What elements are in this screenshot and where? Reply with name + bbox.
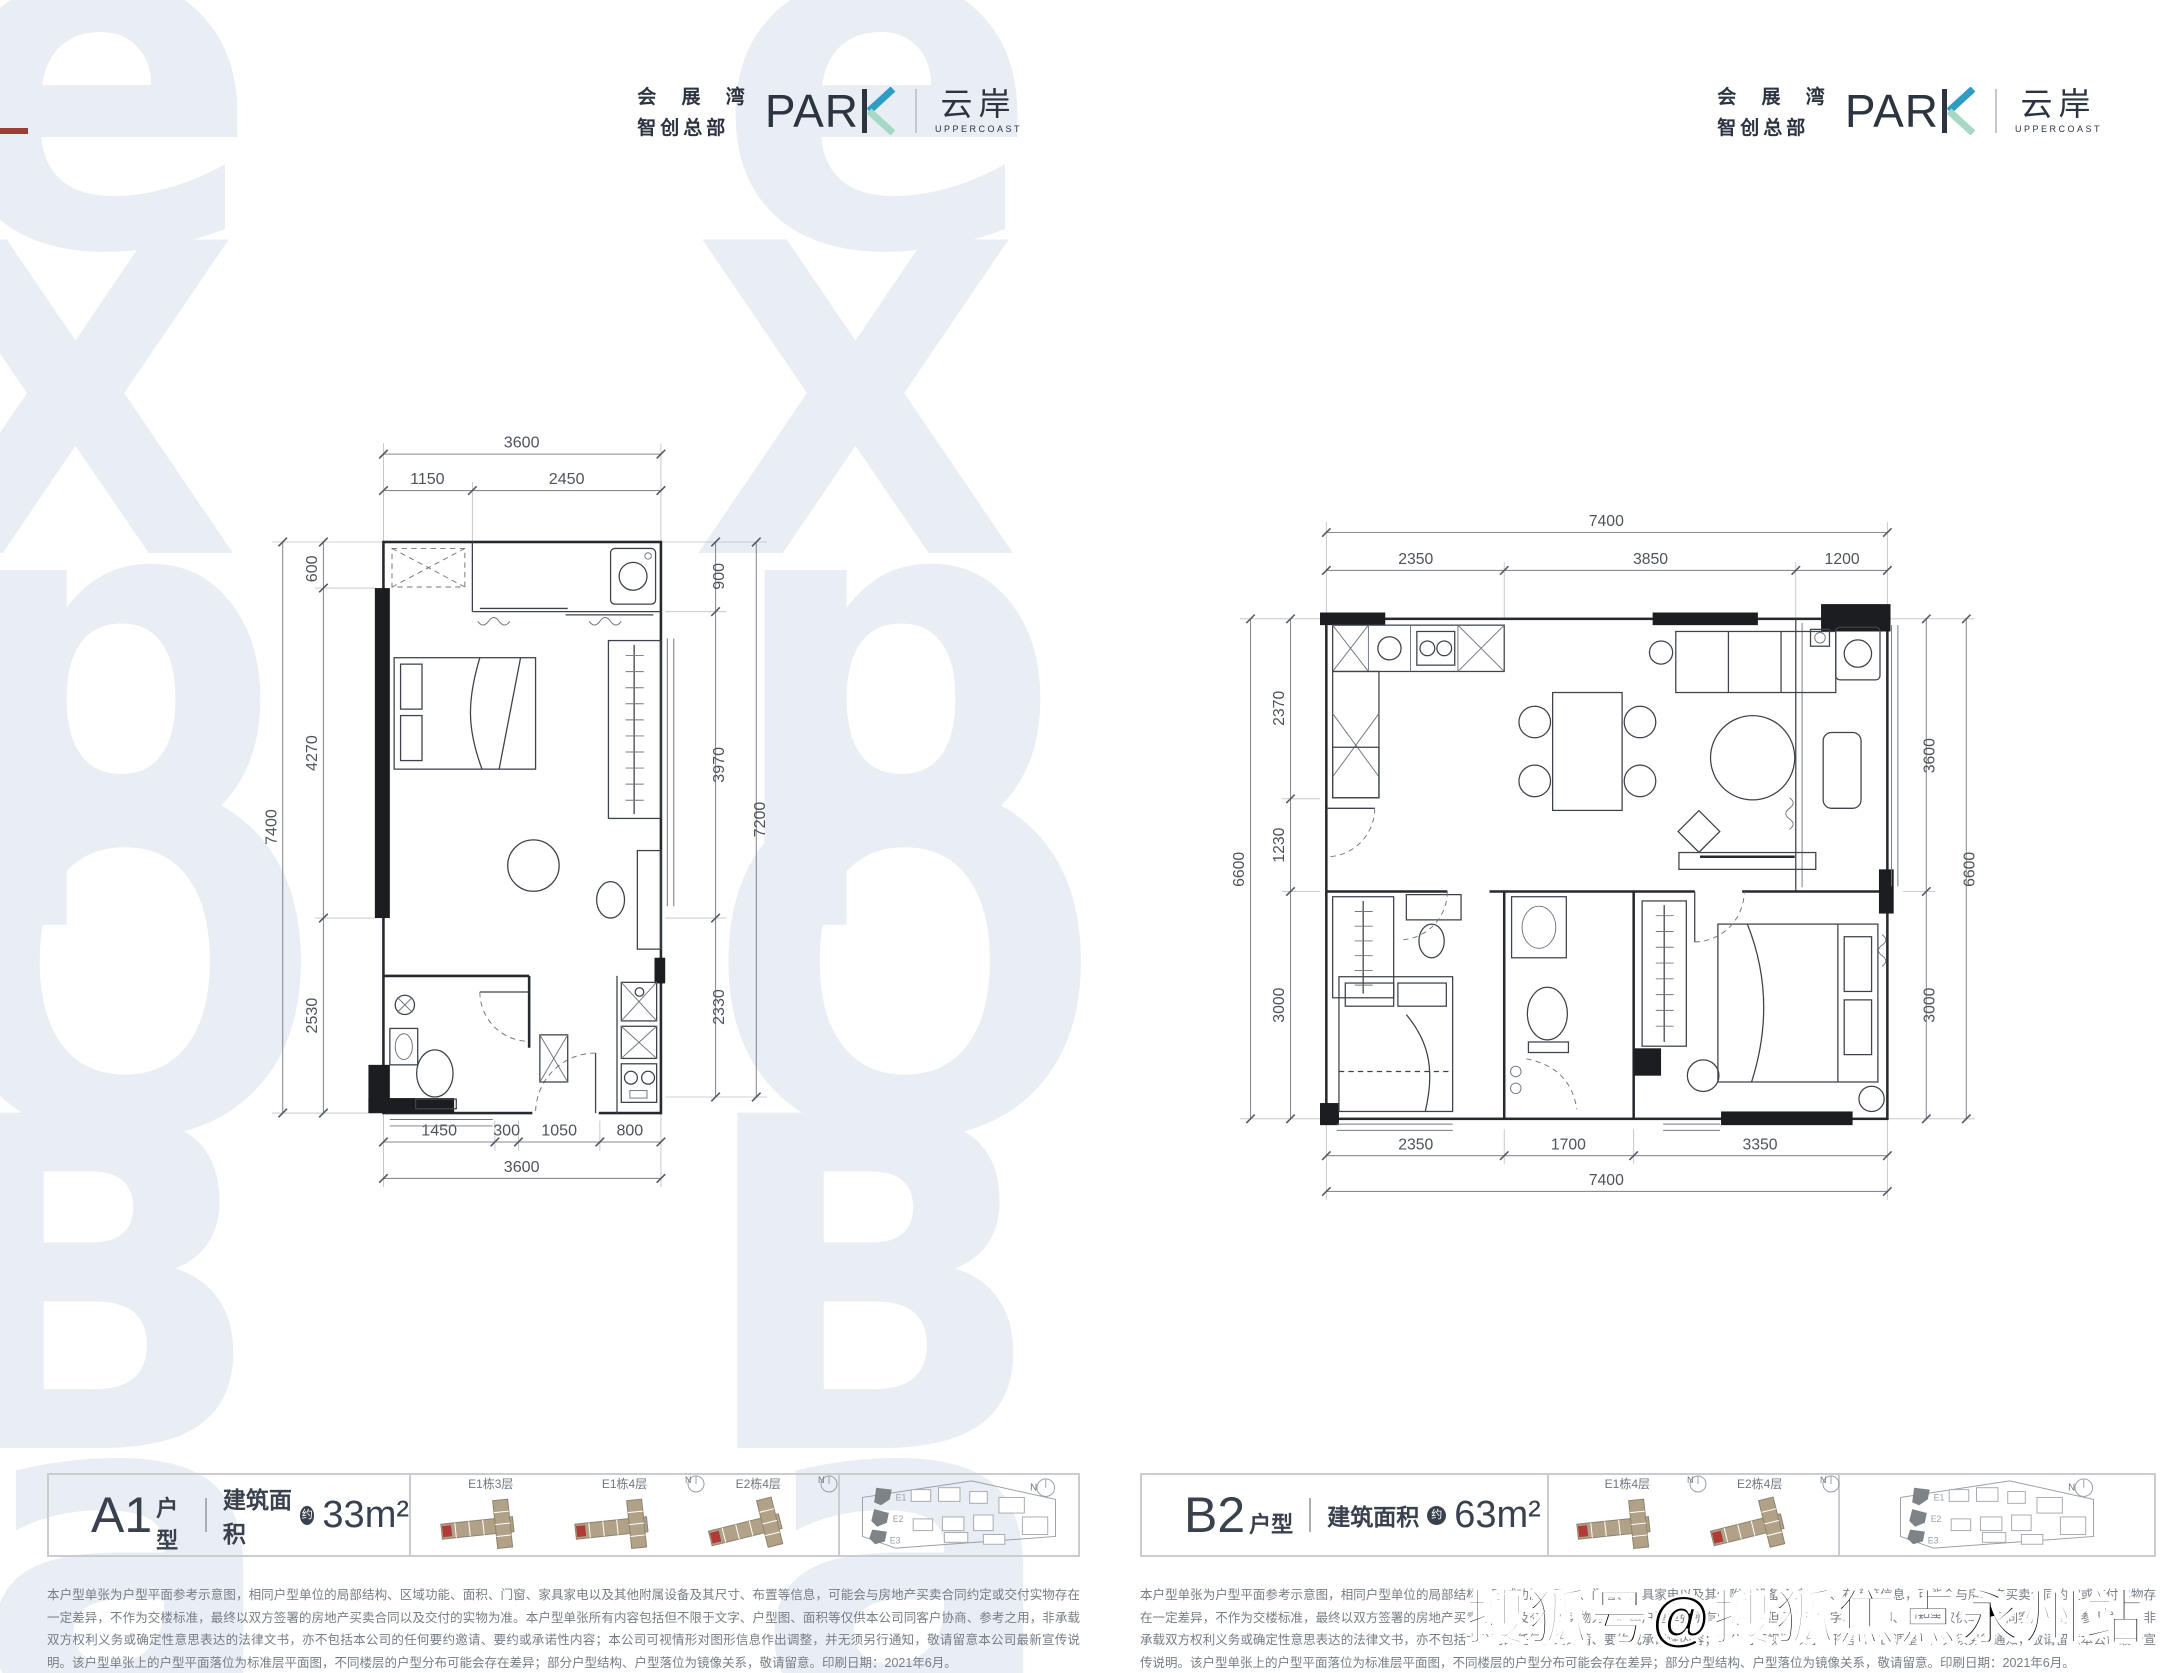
walls bbox=[1320, 604, 1894, 1125]
dim-label: 7400 bbox=[262, 809, 280, 845]
bathroom bbox=[390, 992, 529, 1109]
dim-right: 900 3970 2330 7200 bbox=[710, 538, 769, 1102]
keyplan-label: E1栋3层 bbox=[431, 1475, 551, 1492]
dim-label: 300 bbox=[493, 1122, 520, 1140]
unit-type-label: 户型 bbox=[1249, 1507, 1293, 1539]
curtain-mark bbox=[1878, 935, 1885, 967]
disclaimer-text: 本户型单张为户型平面参考示意图，相同户型单位的局部结构、区域功能、面积、门窗、家… bbox=[47, 1584, 1080, 1673]
dim-label: 6600 bbox=[1231, 852, 1248, 887]
keyplan-cell: E1栋3层 E1栋4层 bbox=[411, 1475, 840, 1555]
brand-logo: 会 展 湾 智创总部 PAR 云岸 UPPERCOAST bbox=[1717, 82, 2102, 140]
keyplan-building-icon bbox=[431, 1493, 551, 1551]
rug bbox=[1711, 716, 1795, 800]
siteplan-cell: E1 E2 E3 N bbox=[840, 1475, 1078, 1555]
dim-label: 2450 bbox=[549, 470, 585, 488]
brand-tagline-line1: 会 展 湾 bbox=[637, 82, 755, 109]
site-building-e2 bbox=[1909, 1509, 1927, 1527]
park-text: PAR bbox=[765, 88, 859, 134]
dim-label: 3600 bbox=[504, 1158, 540, 1176]
dim-label: 2530 bbox=[303, 998, 321, 1034]
page-edge-red-tick bbox=[0, 128, 28, 134]
floorplan-b2: 7400 2350 3850 1200 6600 2370 1230 3000 bbox=[1200, 482, 2000, 1224]
brand-tagline-line2: 智创总部 bbox=[1717, 113, 1835, 140]
entry-door bbox=[1326, 808, 1374, 856]
sub-brand: 云岸 UPPERCOAST bbox=[2015, 88, 2102, 134]
area-label: 建筑面积 bbox=[223, 1481, 292, 1549]
floorplan-a1: 3600 1150 2450 7400 600 4270 2530 bbox=[212, 392, 812, 1254]
logo-divider bbox=[915, 89, 917, 133]
dim-label: 1200 bbox=[1825, 551, 1860, 568]
keyplan-figure: E2栋4层 N bbox=[698, 1475, 818, 1556]
park-wordmark: PAR bbox=[1845, 87, 1977, 135]
dim-label: 3350 bbox=[1742, 1136, 1777, 1153]
dim-label: 2330 bbox=[710, 989, 728, 1025]
north-compass-icon: N bbox=[1030, 1479, 1054, 1497]
north-label: N bbox=[818, 1475, 825, 1485]
keyplan-figure: E1栋4层 N bbox=[1567, 1475, 1687, 1556]
brand-tagline-line1: 会 展 湾 bbox=[1717, 82, 1835, 109]
floorplan-b2-svg: 7400 2350 3850 1200 6600 2370 1230 3000 bbox=[1200, 482, 2000, 1219]
title-divider bbox=[205, 1498, 207, 1532]
windows bbox=[1337, 625, 1898, 1130]
dim-label: 3000 bbox=[1922, 987, 1939, 1022]
ac-platform bbox=[392, 548, 465, 587]
approx-badge: 约 bbox=[300, 1506, 314, 1525]
sub-brand-en: UPPERCOAST bbox=[935, 124, 1022, 134]
unit-title-cell: A1 户型 建筑面积 约 33m² bbox=[49, 1475, 411, 1555]
area-value: 33m² bbox=[322, 1494, 409, 1537]
unit-type-label: 户型 bbox=[156, 1491, 189, 1555]
panel-b2: 会 展 湾 智创总部 PAR 云岸 UPPERCOAST bbox=[1080, 0, 2160, 1673]
round-stool bbox=[508, 840, 559, 891]
dining-table bbox=[1519, 693, 1656, 811]
dim-bottom: 1450 300 1050 800 3600 bbox=[379, 1122, 665, 1183]
brand-logo: 会 展 湾 智创总部 PAR 云岸 UPPERCOAST bbox=[637, 82, 1022, 140]
dim-label: 7200 bbox=[751, 802, 769, 838]
master-bedroom bbox=[1642, 891, 1884, 1111]
north-label: N bbox=[2068, 1483, 2075, 1494]
park-k-logo-icon bbox=[859, 87, 897, 135]
siteplan-cell: E1 E2 E3 N bbox=[1840, 1475, 2154, 1555]
dim-label: 1230 bbox=[1271, 827, 1288, 862]
flyer-page: e X p O B a e X p O B a 会 展 湾 智创总部 PAR bbox=[0, 0, 2160, 1673]
unit-info-bar: A1 户型 建筑面积 约 33m² E1栋3层 bbox=[47, 1473, 1080, 1557]
entry-door bbox=[532, 1035, 598, 1120]
dim-label: 3850 bbox=[1633, 551, 1668, 568]
extension-lines bbox=[272, 443, 767, 1187]
keyplan-figure: E2栋4层 N bbox=[1700, 1475, 1820, 1556]
unit-title-cell: B2 户型 建筑面积 约 63m² bbox=[1142, 1475, 1549, 1555]
dim-label: 600 bbox=[303, 555, 321, 582]
north-label: N bbox=[1687, 1475, 1694, 1485]
north-label: N bbox=[1030, 1483, 1037, 1494]
keyplan-cell: E1栋4层 N bbox=[1549, 1475, 1840, 1555]
keyplan-label: E2栋4层 bbox=[698, 1475, 818, 1492]
sub-brand-cn: 云岸 bbox=[2015, 88, 2102, 122]
dim-label: 800 bbox=[616, 1122, 643, 1140]
dim-label: 1450 bbox=[421, 1122, 457, 1140]
park-k-logo-icon bbox=[1939, 87, 1977, 135]
unit-info-bar: B2 户型 建筑面积 约 63m² E1栋4层 bbox=[1140, 1473, 2156, 1557]
unit-code: A1 bbox=[91, 1490, 152, 1540]
dim-label: 7400 bbox=[1589, 1172, 1624, 1189]
dim-label: 3600 bbox=[504, 434, 540, 452]
desk-chair bbox=[597, 882, 625, 918]
site-building-e2 bbox=[871, 1509, 889, 1527]
dim-top: 3600 1150 2450 bbox=[379, 434, 665, 495]
wardrobe bbox=[608, 641, 660, 819]
north-compass-icon: N bbox=[2068, 1479, 2092, 1497]
sub-brand: 云岸 UPPERCOAST bbox=[935, 88, 1022, 134]
desk bbox=[637, 851, 661, 950]
dim-left: 6600 2370 1230 3000 bbox=[1231, 615, 1295, 1123]
kitchen bbox=[617, 976, 657, 1113]
dim-label: 2350 bbox=[1398, 551, 1433, 568]
approx-badge: 约 bbox=[1427, 1506, 1446, 1525]
dim-right: 3600 3000 6600 bbox=[1922, 615, 1979, 1123]
site-label: E2 bbox=[1931, 1514, 1942, 1524]
dim-left: 7400 600 4270 2530 bbox=[262, 538, 327, 1118]
site-label: E1 bbox=[1934, 1492, 1945, 1502]
keyplan-label: E1栋4层 bbox=[565, 1475, 685, 1492]
dim-label: 1050 bbox=[541, 1122, 577, 1140]
windows bbox=[390, 638, 674, 1125]
site-building-e1 bbox=[874, 1488, 892, 1506]
logo-divider bbox=[1995, 89, 1997, 133]
chaise bbox=[1823, 733, 1861, 809]
curtain-mark bbox=[589, 618, 621, 625]
park-wordmark: PAR bbox=[765, 87, 897, 135]
curtain-mark bbox=[478, 618, 510, 625]
sub-brand-cn: 云岸 bbox=[935, 88, 1022, 122]
keyplan-figure: E1栋4层 N bbox=[565, 1475, 685, 1556]
dim-label: 3000 bbox=[1271, 987, 1288, 1022]
washing-machine bbox=[611, 548, 656, 604]
bed bbox=[394, 658, 535, 769]
site-building-e3 bbox=[869, 1530, 887, 1545]
dim-label: 3600 bbox=[1922, 738, 1939, 773]
sohu-watermark: 搜狐号@搜狐焦点永州站 bbox=[1465, 1570, 2146, 1657]
north-label: N bbox=[685, 1475, 692, 1485]
keyplan-label: E2栋4层 bbox=[1700, 1475, 1820, 1492]
area-label: 建筑面积 bbox=[1327, 1498, 1419, 1532]
title-divider bbox=[1309, 1498, 1311, 1532]
dim-bottom: 2350 1700 3350 7400 bbox=[1322, 1136, 1891, 1195]
bathroom bbox=[1511, 897, 1577, 1110]
north-compass-icon: N bbox=[1816, 1471, 1842, 1497]
dim-label: 1150 bbox=[410, 470, 445, 488]
keyplan-label: E1栋4层 bbox=[1567, 1475, 1687, 1492]
floor-cushion bbox=[1678, 811, 1720, 853]
site-label: E3 bbox=[1928, 1535, 1939, 1545]
area-value: 63m² bbox=[1454, 1494, 1541, 1537]
dim-label: 2350 bbox=[1398, 1136, 1433, 1153]
site-building-e1 bbox=[1912, 1488, 1930, 1506]
dim-label: 1700 bbox=[1551, 1136, 1586, 1153]
panel-a1: 会 展 湾 智创总部 PAR 云岸 UPPERCOAST bbox=[0, 0, 1080, 1673]
north-label: N bbox=[1820, 1475, 1827, 1485]
bedroom2 bbox=[1333, 891, 1461, 1111]
siteplan-icon: E1 E2 E3 N bbox=[1890, 1476, 2104, 1554]
floorplan-a1-svg: 3600 1150 2450 7400 600 4270 2530 bbox=[212, 392, 812, 1249]
washing-machine bbox=[1811, 627, 1880, 680]
keyplan-building-icon bbox=[698, 1493, 818, 1551]
site-label: E2 bbox=[893, 1514, 904, 1524]
dim-label: 900 bbox=[710, 563, 728, 590]
brand-tagline: 会 展 湾 智创总部 bbox=[637, 82, 755, 140]
site-label: E3 bbox=[890, 1535, 901, 1545]
kitchen bbox=[1333, 625, 1505, 798]
sofa bbox=[1649, 631, 1835, 692]
site-label: E1 bbox=[896, 1492, 907, 1502]
keyplan-building-icon bbox=[565, 1493, 685, 1551]
dim-label: 3970 bbox=[710, 747, 728, 783]
dim-label: 2370 bbox=[1271, 691, 1288, 726]
brand-tagline: 会 展 湾 智创总部 bbox=[1717, 82, 1835, 140]
dim-top: 7400 2350 3850 1200 bbox=[1322, 513, 1891, 574]
unit-code: B2 bbox=[1184, 1490, 1245, 1540]
dim-label: 6600 bbox=[1962, 852, 1979, 887]
siteplan-icon: E1 E2 E3 N bbox=[852, 1476, 1066, 1554]
keyplan-building-icon bbox=[1700, 1493, 1820, 1551]
keyplan-figure: E1栋3层 bbox=[431, 1475, 551, 1556]
sub-brand-en: UPPERCOAST bbox=[2015, 124, 2102, 134]
site-building-e3 bbox=[1907, 1530, 1925, 1545]
dim-label: 7400 bbox=[1589, 513, 1624, 530]
keyplan-building-icon bbox=[1567, 1493, 1687, 1551]
brand-tagline-line2: 智创总部 bbox=[637, 113, 755, 140]
dim-label: 4270 bbox=[303, 735, 321, 771]
curtain-mark bbox=[1786, 798, 1793, 830]
north-compass-icon: N bbox=[814, 1471, 840, 1497]
park-text: PAR bbox=[1845, 88, 1939, 134]
